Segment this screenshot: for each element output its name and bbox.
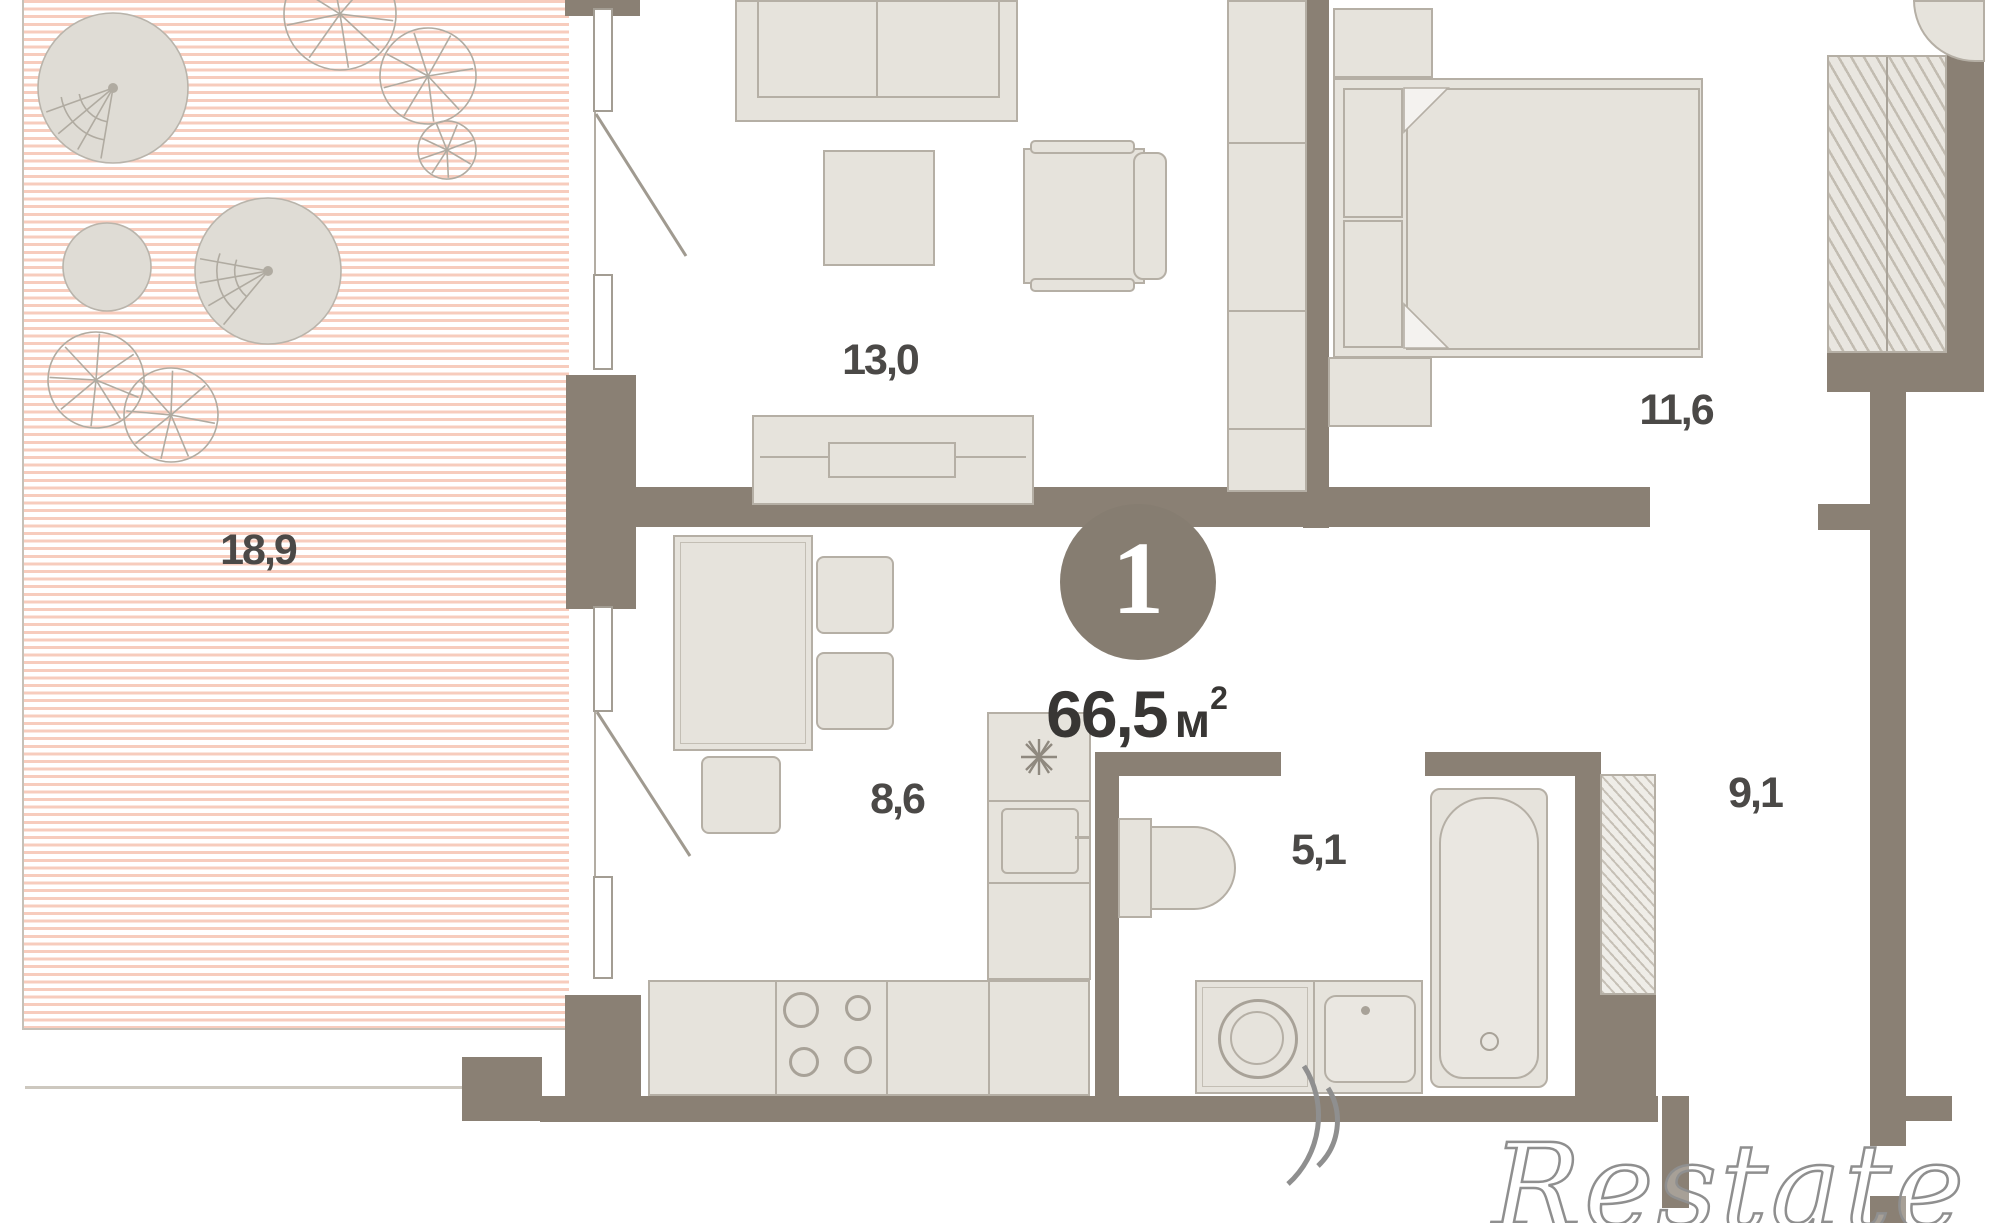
window [593,606,613,712]
coffee-table [823,150,935,266]
pillow [1343,220,1403,348]
kitchen-tall-unit [987,712,1091,980]
wall [566,375,636,609]
unit-number-badge: 1 [1060,504,1216,660]
wall [1575,752,1601,1096]
sofa [735,0,1018,122]
unit-number: 1 [1112,521,1164,636]
pillow [1343,88,1403,218]
tv-console [752,415,1034,505]
hall-area-label: 9,1 [1675,769,1835,817]
terrace-area [22,0,569,1030]
neighbor-door-arc [1913,0,1985,62]
bathroom-area-label: 5,1 [1238,826,1398,874]
toilet-bowl [1150,826,1236,910]
door-threshold [594,710,596,878]
window [593,8,613,112]
stove-burner [844,1046,872,1074]
utility-shaft [1600,774,1656,995]
wall [540,1096,1658,1122]
floor-plan: 13,0 11,6 18,9 8,6 5,1 9,1 1 66,5м2 Rest… [0,0,2000,1223]
armchair-armrest [1030,278,1135,292]
nightstand [1328,357,1432,427]
toilet-tank [1118,818,1152,918]
living-wardrobe [1227,0,1307,492]
kitchen-area-label: 8,6 [817,775,977,823]
bed [1333,78,1703,358]
armchair-armrest [1030,140,1135,154]
stove-burner [845,995,871,1021]
door-threshold [594,112,596,276]
armchair-back [1133,152,1167,280]
total-area-value: 66,5 [1046,677,1166,751]
wall [1095,774,1119,1096]
nightstand [1333,8,1433,78]
wall [1870,388,1906,1146]
dining-table [673,535,813,751]
bedroom-area-label: 11,6 [1596,386,1756,434]
wall [1600,994,1656,1096]
watermark: Restate [1492,1118,1967,1223]
total-area-unit: м [1175,695,1211,748]
chair [816,652,894,730]
living-room-area-label: 13,0 [800,336,960,384]
kitchen-counter [648,980,1090,1096]
chair [816,556,894,634]
washing-machine [1195,980,1315,1094]
wall [1827,352,1984,392]
total-area-label: 66,5м2 [957,676,1317,752]
total-area-sup: 2 [1210,680,1228,716]
stove-burner [783,992,819,1028]
bedroom-wardrobe [1827,55,1947,353]
bathtub [1430,788,1548,1088]
chair [701,756,781,834]
wall [1818,504,1878,530]
window [593,274,613,370]
bathroom-sink [1313,980,1423,1094]
wall [1095,752,1281,776]
oven [1001,808,1079,874]
terrace-outer-edge [25,1086,463,1089]
armchair [1023,148,1145,284]
stove-burner [789,1047,819,1077]
window [593,876,613,979]
wall [462,1057,542,1121]
terrace-area-label: 18,9 [178,526,338,574]
blanket [1406,88,1700,350]
